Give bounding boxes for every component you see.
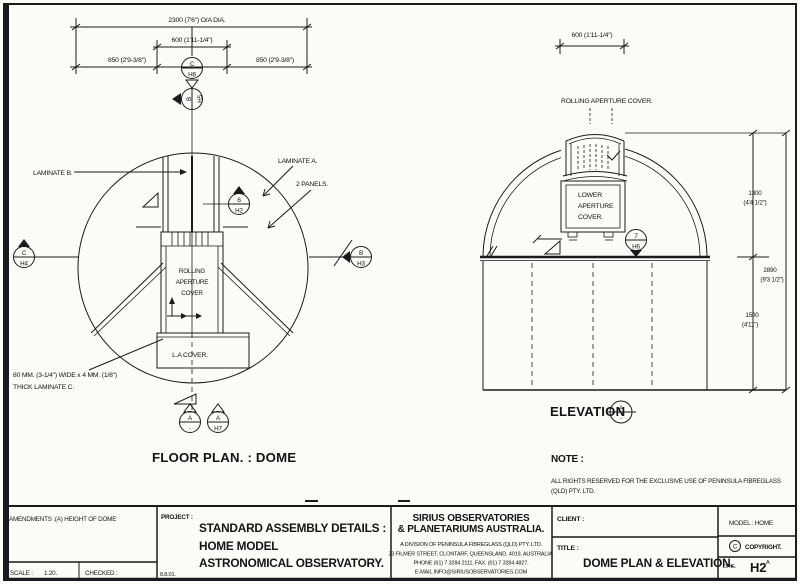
svg-text:7: 7 — [634, 233, 638, 240]
svg-text:-: - — [189, 426, 191, 433]
laminate-c-leader — [89, 339, 163, 370]
laminate-a-label: LAMINATE A. — [278, 158, 318, 165]
copyright-label: COPYRIGHT. — [745, 544, 782, 551]
company-name-line-1: SIRIUS OBSERVATORIES — [413, 513, 530, 524]
scale-label: SCALE : — [10, 570, 33, 577]
elevation-dim-aperture: 600 (1'11-1/4") — [571, 32, 612, 39]
note-heading: NOTE : — [551, 454, 584, 465]
svg-text:H2: H2 — [235, 208, 243, 215]
note-line-2: (QLD) PTY. LTD. — [551, 488, 595, 495]
scale-value: 1:20. — [44, 570, 57, 577]
laminate-c-label-1: 80 MM. (3-1/4") WIDE x 4 MM. (1/8") — [13, 372, 117, 379]
svg-text:H6: H6 — [632, 244, 640, 251]
company-address: 33 FILMER STREET, CLONTARF, QUEENSLAND, … — [389, 552, 555, 558]
rolling-cover-elevation-label: ROLLING APERTURE COVER. — [561, 98, 653, 105]
svg-text:B: B — [359, 250, 363, 257]
drg-label: DRG. — [723, 564, 737, 570]
flag-symbol — [143, 193, 158, 207]
copyright-mark: C — [730, 541, 741, 552]
svg-text:H3: H3 — [357, 261, 365, 268]
svg-text:C: C — [190, 61, 195, 68]
plan-dim-aperture: 600 (1'11-1/4") — [171, 37, 212, 44]
dim-2890: 2890 — [763, 267, 777, 274]
plan-dim-850-right: 850 (2'9-3/8") — [256, 57, 294, 64]
dim-1500: 1500 — [745, 312, 759, 319]
project-title-line-2: HOME MODEL — [199, 539, 278, 553]
marker-balloon-a-dash: A - — [180, 404, 201, 433]
dim-1500-ft: (4'11") — [742, 322, 758, 329]
rolling-cover-label-1: ROLLING — [179, 268, 206, 275]
cylinder-wall — [483, 261, 786, 390]
sheet-border — [4, 4, 796, 580]
marker-balloon-b-h3: B H3 — [309, 240, 372, 268]
marker-balloon-a-h7: A H7 — [208, 404, 229, 433]
laminate-c-label-2: THICK LAMINATE C. — [13, 384, 74, 391]
marker-balloon-7-h6: 7 H6 — [626, 230, 647, 258]
drawing-date: 8.8.01. — [160, 572, 176, 578]
note-line-1: ALL RIGHTS RESERVED FOR THE EXCLUSIVE US… — [551, 478, 781, 485]
lower-cover-label-3: COVER. — [578, 214, 603, 221]
svg-text:-: - — [620, 416, 622, 423]
svg-text:A: A — [216, 415, 221, 422]
two-panels-leader — [268, 190, 311, 228]
laminate-b-label: LAMINATE B. — [33, 170, 73, 177]
amendments-note: AMENDMENTS :(A) HEIGHT OF DOME — [9, 516, 116, 523]
svg-text:H6: H6 — [188, 72, 196, 79]
la-cover-label: L.A COVER. — [172, 352, 208, 359]
dim-2890-ft: (9'3 1/2") — [760, 277, 783, 284]
svg-text:B: B — [186, 97, 193, 101]
svg-text:H5: H5 — [197, 94, 204, 102]
floor-plan-view: 2300 (7'6") O/A DIA. 600 (1'11-1/4") 850… — [13, 17, 372, 465]
dim-1300-ft: (4'4 1/2") — [743, 200, 766, 207]
two-panels-label: 2 PANELS. — [296, 181, 328, 188]
cover-left-leader — [533, 235, 562, 254]
svg-text:C: C — [733, 544, 738, 551]
flag-symbol — [174, 394, 196, 404]
rolling-cover-label-3: COVER — [181, 290, 203, 297]
title-block: AMENDMENTS :(A) HEIGHT OF DOME SCALE : 1… — [4, 506, 796, 579]
elevation-dimension-600 — [555, 39, 629, 54]
dim-1300: 1300 — [748, 190, 762, 197]
svg-text:A: A — [188, 415, 193, 422]
project-title-line-1: STANDARD ASSEMBLY DETAILS : — [199, 521, 386, 535]
drg-revision: A — [766, 560, 770, 566]
client-label: CLIENT : — [557, 516, 584, 523]
svg-text:H7: H7 — [214, 426, 222, 433]
drg-number: H2 — [750, 560, 766, 575]
title-label: TITLE : — [557, 545, 579, 552]
project-title-line-3: ASTRONOMICAL OBSERVATORY. — [199, 556, 384, 570]
drawing-svg: 2300 (7'6") O/A DIA. 600 (1'11-1/4") 850… — [0, 0, 800, 584]
lower-cover-label-1: LOWER — [578, 192, 602, 199]
floor-plan-caption: FLOOR PLAN. : DOME — [152, 450, 296, 465]
svg-text:C: C — [22, 250, 27, 257]
rolling-cover-label-2: APERTURE — [176, 279, 209, 286]
lower-cover-label-2: APERTURE — [578, 203, 614, 210]
marker-balloon-6-h2: 6 H2 — [203, 186, 250, 215]
plan-dim-overall: 2300 (7'6") O/A DIA. — [168, 17, 225, 24]
svg-text:H4: H4 — [20, 261, 28, 268]
company-name-line-2: & PLANETARIUMS AUSTRALIA. — [398, 524, 545, 535]
checked-label: CHECKED : — [85, 570, 118, 577]
drawing-title: DOME PLAN & ELEVATION. — [583, 556, 734, 570]
la-cover-box — [157, 333, 249, 368]
project-label: PROJECT : — [161, 514, 193, 521]
company-phone-fax: PHONE (61) 7 3284 2111. FAX. (61) 7 3284… — [414, 561, 530, 567]
elevation-view: 600 (1'11-1/4") ROLLING APERTURE COVER. — [480, 32, 790, 495]
company-email: E-MAIL INFO@SIRIUSOBSERVATORIES.COM — [415, 570, 528, 576]
model-value: MODEL : HOME — [729, 520, 773, 527]
dome-base-ring — [480, 246, 710, 261]
marker-balloon-b-h5: B H5 — [172, 89, 204, 110]
plan-dim-850-left: 850 (2'9-3/8") — [108, 57, 146, 64]
drawing-sheet: 2300 (7'6") O/A DIA. 600 (1'11-1/4") 850… — [0, 0, 800, 584]
marker-balloon-c-h4: C H4 — [14, 239, 80, 268]
svg-text:6: 6 — [237, 197, 241, 204]
marker-balloon-c-h6: C H6 — [182, 58, 203, 89]
laminate-b-leader — [74, 169, 187, 175]
company-division: A DIVISION OF PENINSULA FIBREGLASS (QLD)… — [400, 542, 542, 548]
